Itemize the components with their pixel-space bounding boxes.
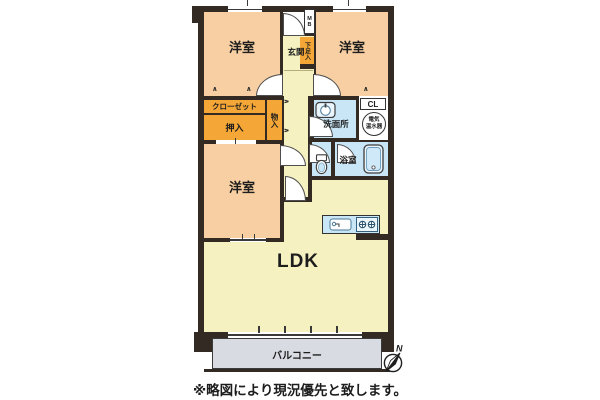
water-heater-label-2: 温水器 xyxy=(362,123,386,129)
bedroom-1-label: 洋室 xyxy=(204,38,280,54)
window-tick xyxy=(310,326,312,333)
balcony-ledge xyxy=(204,369,390,372)
caption-note: ※略図により現況優先と致します。 xyxy=(0,381,600,397)
window-bedroom-1 xyxy=(228,6,262,12)
kitchen-sink-icon xyxy=(326,218,352,231)
window-tick xyxy=(247,0,248,6)
closet-label: クローゼット xyxy=(204,100,265,113)
door-tick xyxy=(254,234,255,239)
entrance-step-line xyxy=(284,70,313,71)
balcony-label: バルコニー xyxy=(212,348,382,360)
window-tick xyxy=(348,0,349,6)
door-swing-mark: ∧ xyxy=(282,128,289,134)
bathroom-label: 浴室 xyxy=(336,155,360,165)
window-tick xyxy=(284,326,286,333)
door-tick xyxy=(242,234,243,239)
washroom-label: 洗面所 xyxy=(316,118,356,129)
ldk-label: LDK xyxy=(262,251,334,273)
sliding-door-bedroom-3 xyxy=(230,238,266,242)
meter-box-label: MB xyxy=(304,10,315,33)
bathtub-icon xyxy=(363,144,384,174)
bedroom-2-label: 洋室 xyxy=(316,38,388,54)
storage-closet-label: 物入 xyxy=(267,100,282,140)
stove-burners-icon xyxy=(356,217,378,232)
window-tick xyxy=(258,326,260,333)
shoe-cabinet-label: 下足入 xyxy=(300,38,314,64)
toilet-icon xyxy=(314,154,329,175)
compass-north-label: N xyxy=(396,344,403,354)
door-swing-mark: ∧ xyxy=(282,99,289,105)
closet-cl-label: CL xyxy=(360,98,386,110)
kitchen-wall-stub xyxy=(356,234,388,240)
compass-icon: N xyxy=(380,342,406,374)
futon-closet-label: 押入 xyxy=(204,115,265,140)
washbasin-icon xyxy=(315,101,336,118)
door-swing-mark: ∧ xyxy=(212,86,218,93)
door-swing-mark: ∧ xyxy=(363,86,369,93)
shoe-cabinet-wall xyxy=(300,64,314,69)
floor-plan: MB CL 電気 温水器 ∧ ∧ ∧ ∧ ∧ 洋室 洋室 洋室 玄関 xyxy=(0,0,600,400)
bedroom-3-label: 洋室 xyxy=(204,178,280,194)
door-swing-mark: ∧ xyxy=(246,86,252,93)
window-bedroom-2 xyxy=(333,6,366,12)
window-tick xyxy=(336,326,338,333)
